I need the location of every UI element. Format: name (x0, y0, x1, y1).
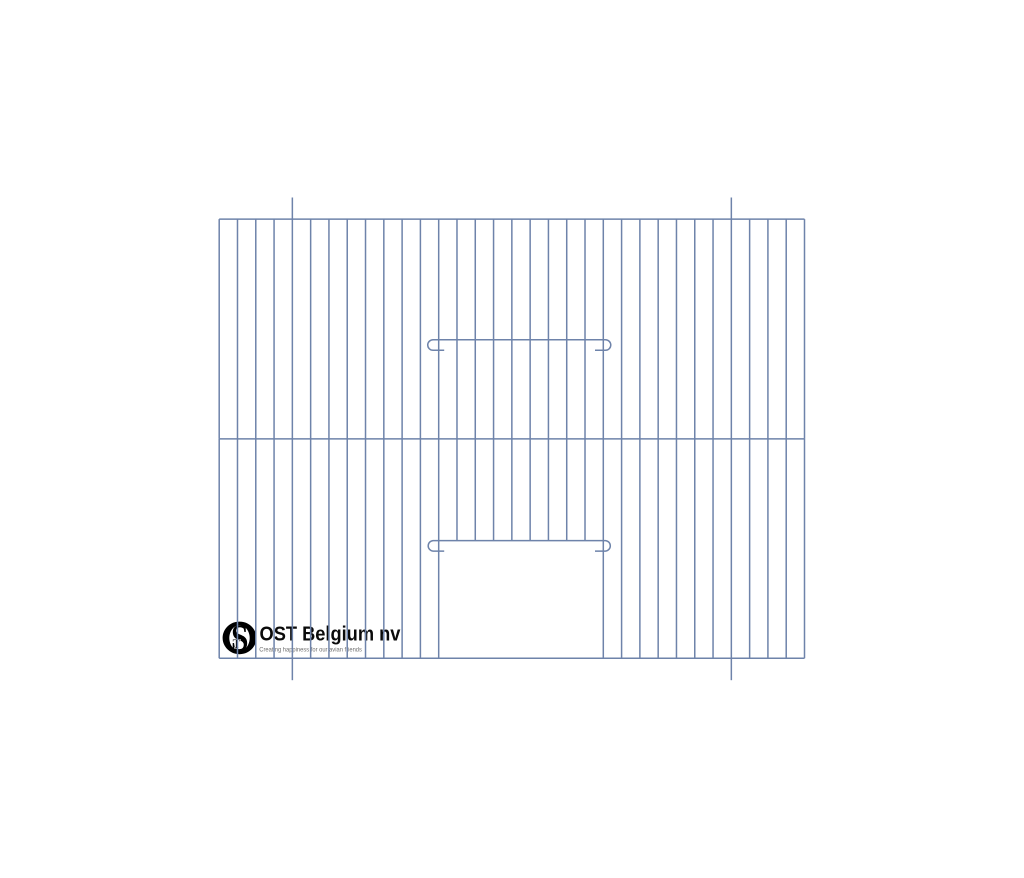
svg-text:OST Belgium nv: OST Belgium nv (260, 622, 401, 645)
svg-text:T: T (233, 637, 241, 651)
